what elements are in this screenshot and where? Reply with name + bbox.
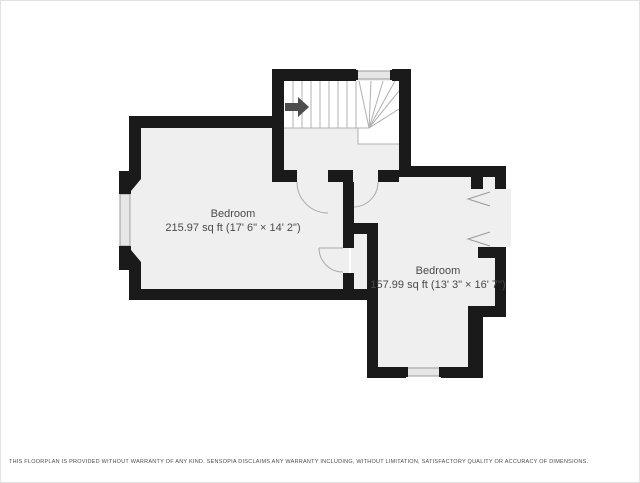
wall-bedroom1-east-lower xyxy=(343,273,354,300)
window-stairs-top xyxy=(355,70,393,80)
wall-opening-jamb-stub xyxy=(471,177,483,189)
wall-bedroom1-south xyxy=(129,289,378,300)
floorplan-page: Bedroom 215.97 sq ft (17' 6" × 14' 2") B… xyxy=(0,0,640,483)
wall-bedroom1-north xyxy=(129,116,284,128)
wall-bedroom2-west xyxy=(367,234,378,378)
wall-bedroom2-east-mid xyxy=(495,247,506,306)
bedroom-2-floor-lower xyxy=(367,317,479,371)
wall-bedroom2-south-right xyxy=(441,367,483,378)
wall-stairs-east xyxy=(399,69,411,177)
bedroom-1-dims-label: 215.97 sq ft (17' 6" × 14' 2") xyxy=(165,222,300,234)
wall-bedroom1-east-upper xyxy=(343,182,354,248)
stairs-winder-area xyxy=(358,128,399,144)
wall-landing-south-1 xyxy=(272,170,297,182)
wall-bedroom1-west-upper xyxy=(129,116,141,173)
bedroom-2-dims-label: 157.99 sq ft (13' 3" × 16' 7") xyxy=(370,279,505,291)
wall-bedroom2-north xyxy=(399,166,506,177)
floorplan-svg: Bedroom 215.97 sq ft (17' 6" × 14' 2") B… xyxy=(1,1,640,483)
wall-landing-south-2 xyxy=(328,170,353,182)
bedroom-2-name-label: Bedroom xyxy=(416,265,461,277)
wall-closet-cap xyxy=(343,223,378,234)
opening-nook-floor xyxy=(495,189,511,247)
window-bedroom1-bay xyxy=(119,190,131,250)
wall-bedroom2-south-left xyxy=(367,367,406,378)
window-bedroom2-south xyxy=(405,367,442,377)
wall-stairs-west xyxy=(272,69,284,182)
wall-bedroom2-east-top xyxy=(495,166,506,189)
wall-landing-south-3 xyxy=(378,170,399,182)
footer-disclaimer: THIS FLOORPLAN IS PROVIDED WITHOUT WARRA… xyxy=(9,459,588,465)
bedroom-1-name-label: Bedroom xyxy=(211,208,256,220)
wall-stairs-north-left xyxy=(272,69,356,81)
